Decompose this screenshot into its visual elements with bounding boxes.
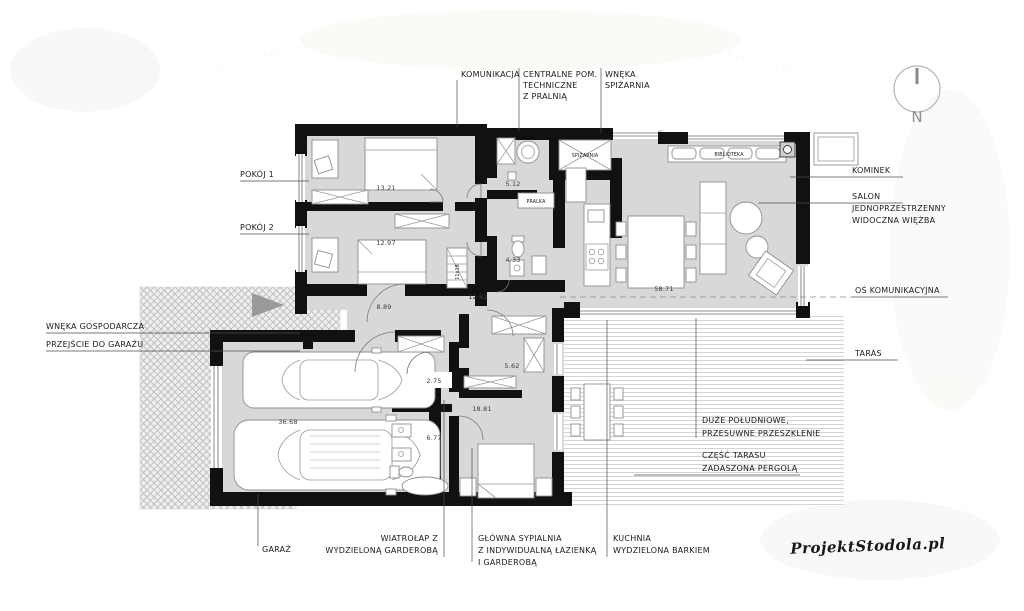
attic-ladder-size: 11x18: [455, 264, 461, 280]
label-pokoj2: POKÓJ 2: [240, 221, 274, 232]
area-pokoj2: 12.97: [376, 239, 396, 247]
label-wiatrolap-2: WYDZIELONĄ GARDEROBĄ: [325, 546, 438, 555]
compass-north-label: N: [911, 108, 922, 126]
outdoor-box: [814, 133, 858, 165]
area-garderoba-wiatrolap: 2.75: [426, 377, 441, 385]
attic-ladder: 11x18: [447, 248, 467, 288]
label-centralne-2: TECHNICZNE: [522, 81, 578, 90]
label-przejscie: PRZEJŚCIE DO GARAŻU: [46, 338, 143, 349]
label-kuchnia-2: WYDZIELONA BARKIEM: [613, 546, 710, 555]
label-wiatrolap-1: WIATROŁAP Z: [381, 534, 439, 543]
label-przeszklenie-2: PRZESUWNE PRZESZKLENIE: [702, 429, 820, 438]
dining-table: [616, 216, 696, 288]
label-komunikacja: KOMUNIKACJA: [461, 70, 520, 79]
label-przeszklenie-1: DUŻE POŁUDNIOWE,: [702, 415, 789, 425]
label-salon-3: WIDOCZNA WIĘŹBA: [852, 214, 936, 225]
label-wneka-1: WNĘKA: [605, 70, 636, 79]
washer-label: PRALKA: [527, 199, 547, 205]
floor-plan-drawing: SPIŻARNIA PRALKA 11x18: [0, 0, 1024, 611]
label-wneka-gospodarcza: WNĘKA GOSPODARCZA: [46, 322, 144, 331]
label-salon-1: SALON: [852, 192, 880, 201]
area-sypialnia: 18.81: [472, 405, 492, 413]
label-garaz: GARAŻ: [262, 544, 291, 554]
pantry-label: SPIŻARNIA: [572, 152, 599, 159]
area-hol: 8.89: [376, 303, 391, 311]
area-garaz: 36.68: [278, 418, 298, 426]
area-lazienka-glowna: 6.77: [426, 434, 441, 442]
fireplace: [780, 142, 795, 157]
floor-plan-page: SPIŻARNIA PRALKA 11x18: [0, 0, 1024, 611]
label-pergola-1: CZĘŚĆ TARASU: [702, 449, 766, 460]
area-lazienka: 4.33: [505, 256, 520, 264]
label-pergola-2: ZADASZONA PERGOLĄ: [702, 464, 798, 473]
garage-car-top: [243, 348, 435, 412]
label-os: OŚ KOMUNIKACYJNA: [855, 284, 940, 295]
terrace-deck: [564, 316, 844, 506]
label-sypialnia-2: Z INDYWIDUALNĄ ŁAZIENKĄ: [478, 546, 597, 555]
label-salon-2: JEDNOPRZESTRZENNY: [851, 204, 946, 213]
label-kominek: KOMINEK: [852, 166, 891, 175]
area-tech: 5.12: [505, 180, 520, 188]
label-sypialnia-1: GŁÓWNA SYPIALNIA: [478, 532, 562, 543]
label-pokoj1: POKÓJ 1: [240, 168, 274, 179]
area-pokoj1: 13.21: [376, 184, 396, 192]
label-taras: TARAS: [854, 349, 882, 358]
label-centralne-1: CENTRALNE POM.: [523, 70, 597, 79]
label-centralne-3: Z PRALNIĄ: [523, 92, 567, 101]
area-garderoba-sypialni: 5.62: [504, 362, 519, 370]
area-salon: 58.71: [654, 285, 674, 293]
label-kuchnia-1: KUCHNIA: [613, 534, 651, 543]
label-wneka-2: SPIŻARNIA: [605, 80, 650, 90]
label-sypialnia-3: I GARDEROBĄ: [478, 558, 537, 567]
library-label: BIBLIOTEKA: [714, 152, 744, 158]
terrace-table: [571, 384, 623, 440]
area-komunikacja: 12.62: [468, 293, 488, 301]
